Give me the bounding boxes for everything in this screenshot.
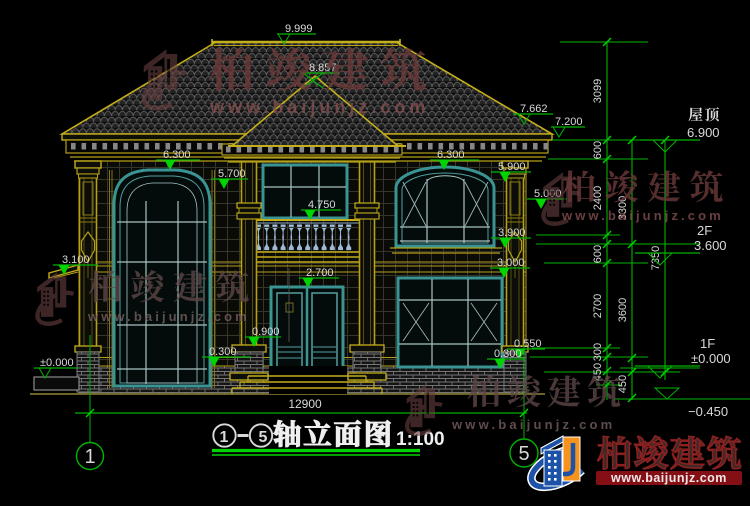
svg-text:600: 600 xyxy=(592,141,604,159)
svg-text:2F: 2F xyxy=(697,223,712,238)
svg-text:2700: 2700 xyxy=(592,294,604,318)
svg-text:www.baijunjz.com: www.baijunjz.com xyxy=(561,208,724,223)
svg-text:5: 5 xyxy=(259,429,268,446)
svg-text:5: 5 xyxy=(518,443,529,465)
svg-text:7.662: 7.662 xyxy=(520,103,548,115)
svg-text:±0.000: ±0.000 xyxy=(40,357,74,369)
svg-text:6.300: 6.300 xyxy=(163,149,191,161)
svg-text:3.100: 3.100 xyxy=(62,254,90,266)
svg-text:2400: 2400 xyxy=(592,186,604,210)
svg-text:6.900: 6.900 xyxy=(687,125,720,140)
svg-text:−0.450: −0.450 xyxy=(688,404,728,419)
svg-text:7.200: 7.200 xyxy=(555,116,583,128)
svg-text:0.900: 0.900 xyxy=(252,326,280,338)
svg-text:1F: 1F xyxy=(700,336,715,351)
svg-text:www.baijunjz.com: www.baijunjz.com xyxy=(87,309,250,324)
svg-text:±0.000: ±0.000 xyxy=(691,351,731,366)
svg-text:450: 450 xyxy=(617,375,629,393)
svg-text:3.900: 3.900 xyxy=(498,227,526,239)
svg-text:5.900: 5.900 xyxy=(498,161,526,173)
svg-text:3.000: 3.000 xyxy=(497,257,525,269)
svg-text:9.999: 9.999 xyxy=(285,23,313,35)
svg-text:7350: 7350 xyxy=(650,246,662,270)
svg-text:www.baijunjz.com: www.baijunjz.com xyxy=(451,417,615,432)
svg-text:3099: 3099 xyxy=(592,79,604,103)
svg-text:0.300: 0.300 xyxy=(209,346,237,358)
svg-text:12900: 12900 xyxy=(288,397,322,411)
svg-text:600: 600 xyxy=(592,245,604,263)
svg-text:300: 300 xyxy=(592,343,604,361)
svg-text:1: 1 xyxy=(220,429,229,446)
svg-text:3.600: 3.600 xyxy=(694,238,727,253)
svg-text:5.700: 5.700 xyxy=(218,168,246,180)
svg-text:2.700: 2.700 xyxy=(306,267,334,279)
svg-text:4.750: 4.750 xyxy=(308,199,336,211)
svg-text:1: 1 xyxy=(84,446,95,468)
svg-text:0.300: 0.300 xyxy=(494,348,522,360)
svg-text:www.baijunjz.com: www.baijunjz.com xyxy=(209,97,429,117)
svg-text:www.baijunjz.com: www.baijunjz.com xyxy=(610,471,727,485)
svg-text:6.300: 6.300 xyxy=(437,149,465,161)
svg-text:3600: 3600 xyxy=(617,298,629,322)
